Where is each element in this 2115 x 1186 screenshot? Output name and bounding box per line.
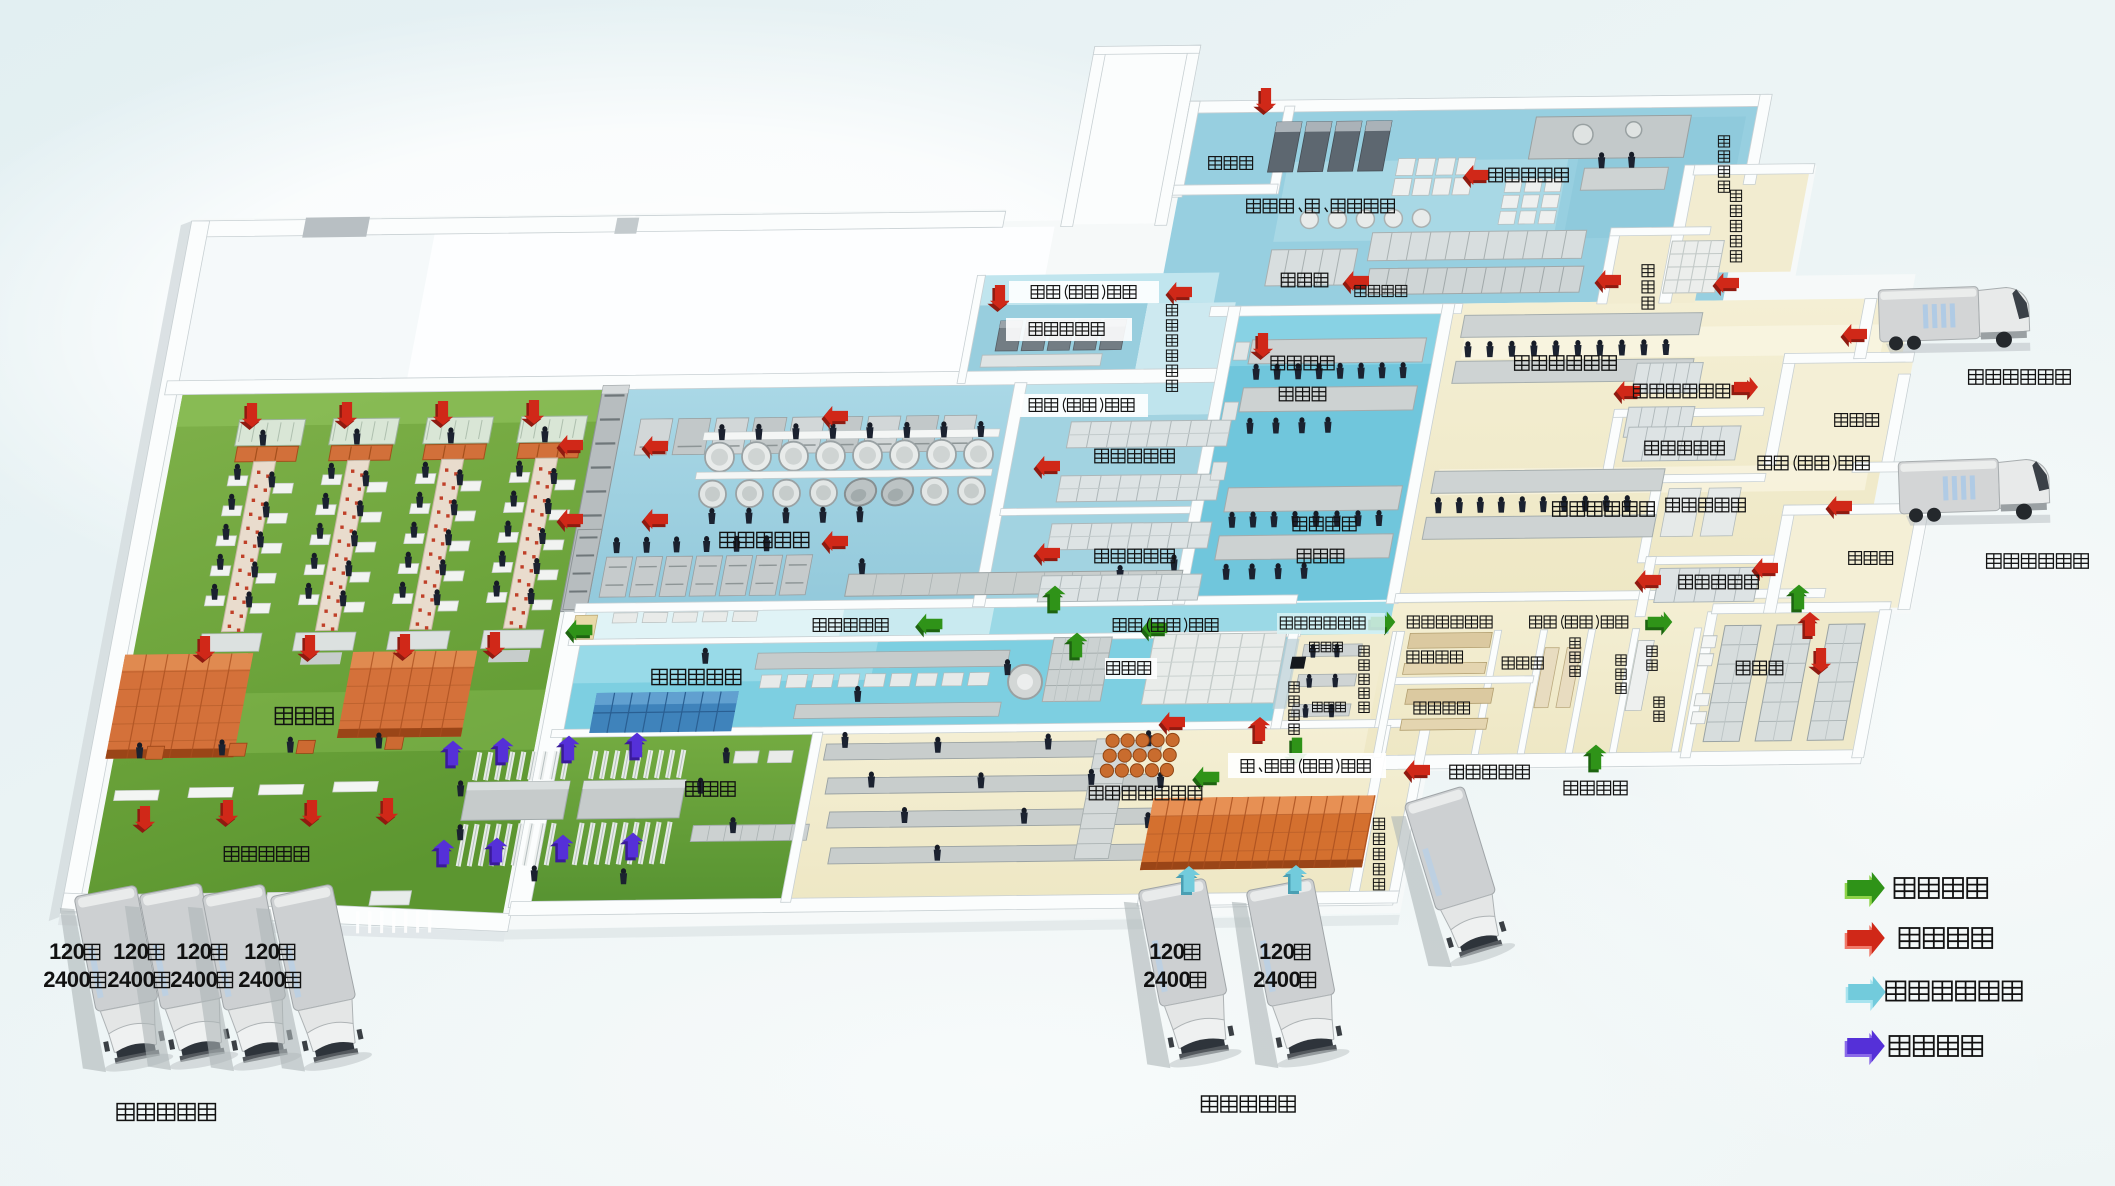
svg-text:2: 2 (43, 967, 55, 992)
svg-text:0: 0 (206, 967, 218, 992)
svg-text:1: 1 (113, 939, 125, 964)
svg-text:1: 1 (176, 939, 188, 964)
svg-text:2: 2 (1253, 967, 1265, 992)
svg-text:2: 2 (188, 939, 200, 964)
svg-text:2: 2 (1143, 967, 1155, 992)
svg-text:2: 2 (61, 939, 73, 964)
svg-text:2: 2 (1161, 939, 1173, 964)
svg-text:0: 0 (73, 939, 85, 964)
svg-text:2: 2 (238, 967, 250, 992)
svg-text:1: 1 (49, 939, 61, 964)
svg-text:1: 1 (244, 939, 256, 964)
svg-text:0: 0 (67, 967, 79, 992)
svg-text:0: 0 (1277, 967, 1289, 992)
svg-text:1: 1 (1259, 939, 1271, 964)
svg-text:2: 2 (107, 967, 119, 992)
svg-text:0: 0 (200, 939, 212, 964)
svg-text:0: 0 (1283, 939, 1295, 964)
svg-text:0: 0 (143, 967, 155, 992)
svg-text:0: 0 (1179, 967, 1191, 992)
svg-text:0: 0 (1289, 967, 1301, 992)
svg-text:0: 0 (131, 967, 143, 992)
svg-text:1: 1 (1149, 939, 1161, 964)
svg-text:2: 2 (125, 939, 137, 964)
svg-text:0: 0 (79, 967, 91, 992)
svg-text:2: 2 (1271, 939, 1283, 964)
svg-text:2: 2 (170, 967, 182, 992)
svg-text:0: 0 (194, 967, 206, 992)
svg-text:0: 0 (137, 939, 149, 964)
svg-text:0: 0 (1167, 967, 1179, 992)
svg-text:0: 0 (268, 939, 280, 964)
svg-text:0: 0 (274, 967, 286, 992)
svg-text:2: 2 (256, 939, 268, 964)
svg-text:0: 0 (1173, 939, 1185, 964)
svg-text:0: 0 (262, 967, 274, 992)
